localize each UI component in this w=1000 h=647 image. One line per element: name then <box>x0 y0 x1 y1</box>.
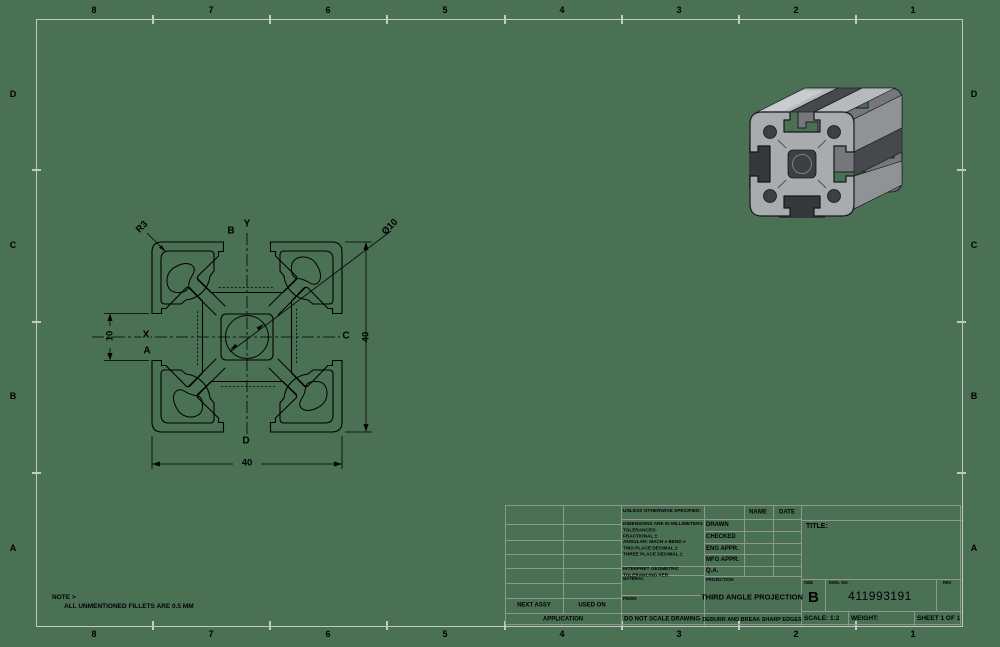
grid-line <box>704 531 801 532</box>
title-block: NEXT ASSY USED ON APPLICATION UNLESS OTH… <box>505 505 961 625</box>
rev-label: REV <box>943 581 951 586</box>
scale-value: SCALE: 1:2 <box>804 615 839 622</box>
grid-line <box>506 568 621 569</box>
mfg-appr-label: MFG APPR. <box>706 557 739 564</box>
dim-width-label: 40 <box>240 458 255 469</box>
grid-line <box>563 506 564 613</box>
material-label: MATERIAL <box>623 577 644 582</box>
drawn-label: DRAWN <box>706 522 729 529</box>
unless-otherwise-label: UNLESS OTHERWISE SPECIFIED: <box>623 509 701 515</box>
date-header: DATE <box>779 510 795 517</box>
used-on-label: USED ON <box>578 603 605 610</box>
grid-line <box>801 579 962 580</box>
dim-height-label: 40 <box>361 332 372 343</box>
dim-slot-label: 10 <box>105 331 116 342</box>
note-line2: ALL UNMENTIONED FILLETS ARE 0.5 MM <box>52 602 194 611</box>
sheet-of-value: SHEET 1 OF 1 <box>917 615 960 622</box>
grid-line <box>704 566 801 567</box>
grid-line <box>801 611 962 612</box>
next-assy-label: NEXT ASSY <box>517 603 551 610</box>
axis-label-d: D <box>241 436 250 447</box>
name-header: NAME <box>749 510 767 517</box>
grid-line <box>801 520 962 521</box>
deburr-label: DEBURR AND BREAK SHARP EDGES <box>702 617 801 623</box>
isometric-view <box>749 88 902 218</box>
grid-line <box>506 598 621 599</box>
grid-line <box>506 524 621 525</box>
size-value: B <box>808 589 819 606</box>
grid-line <box>914 611 915 626</box>
drawing-note: NOTE > ALL UNMENTIONED FILLETS ARE 0.5 M… <box>52 593 194 612</box>
grid-line <box>704 543 801 544</box>
grid-line <box>704 554 801 555</box>
weight-label: WEIGHT: <box>851 615 878 622</box>
drawing-sheet: 8 7 6 5 4 3 2 1 8 7 6 5 4 3 2 1 D C B A … <box>0 0 1000 647</box>
eng-appr-label: ENG APPR. <box>706 546 739 553</box>
note-line1: NOTE > <box>52 593 194 602</box>
tolerance-spec-block: DIMENSIONS ARE IN MILLIMETERS TOLERANCES… <box>623 522 703 558</box>
grid-line <box>848 611 849 626</box>
grid-line <box>621 595 704 596</box>
size-label: SIZE <box>804 581 813 586</box>
grid-line <box>621 519 801 520</box>
axis-label-a: A <box>142 346 151 357</box>
grid-line <box>506 583 621 584</box>
grid-line <box>936 579 937 611</box>
title-label: TITLE: <box>806 523 828 531</box>
dwg-no-value: 411993191 <box>848 590 912 604</box>
grid-line <box>506 613 801 614</box>
qa-label: Q.A. <box>706 568 718 575</box>
checked-label: CHECKED <box>706 534 736 541</box>
spec-line: THREE PLACE DECIMAL ± <box>623 552 703 558</box>
do-not-scale-label: DO NOT SCALE DRAWING <box>624 617 700 624</box>
axis-label-y: Y <box>243 219 252 230</box>
dwg-no-label: DWG. NO. <box>829 581 849 586</box>
axis-label-b: B <box>226 226 235 237</box>
grid-line <box>506 540 621 541</box>
application-label: APPLICATION <box>543 617 583 624</box>
axis-label-x: X <box>142 330 151 341</box>
finish-label: FINISH <box>623 597 637 602</box>
grid-line <box>801 506 802 626</box>
interpret-line: INTERPRET GEOMETRIC <box>623 567 679 573</box>
grid-line <box>825 579 826 611</box>
projection-label: PROJECTION: <box>706 578 734 583</box>
projection-value: THIRD ANGLE PROJECTION <box>701 594 803 603</box>
spec-line: DIMENSIONS ARE IN MILLIMETERS <box>623 522 703 528</box>
grid-line <box>704 576 801 577</box>
centerlines <box>92 233 340 437</box>
axis-label-c: C <box>341 331 350 342</box>
grid-line <box>506 554 621 555</box>
